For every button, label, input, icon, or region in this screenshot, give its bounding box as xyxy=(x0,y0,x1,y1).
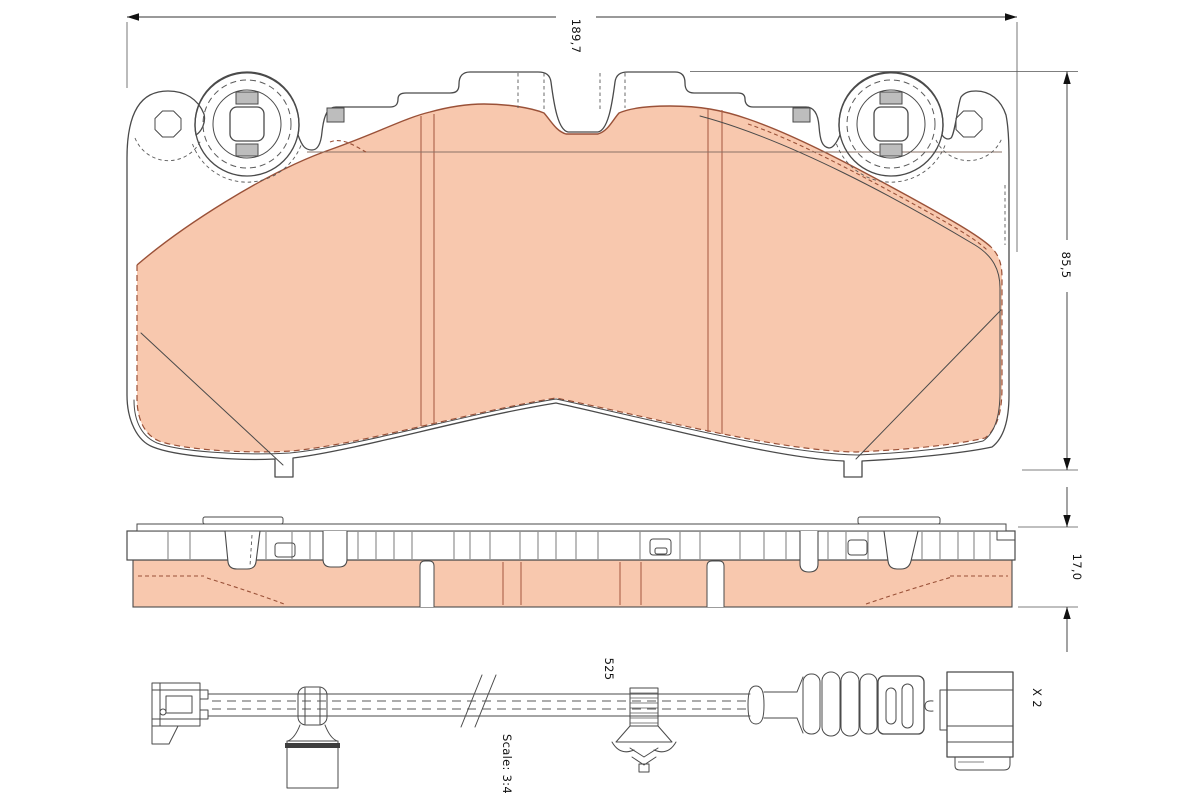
sensor-head-connector xyxy=(152,683,208,744)
sensor-cable xyxy=(208,694,750,716)
arrow-right xyxy=(1005,13,1017,21)
arrow-bottom xyxy=(1063,607,1070,619)
thickness-dimension: 17,0 xyxy=(1018,487,1084,652)
plug-body xyxy=(878,676,933,734)
arrow-top xyxy=(1063,515,1070,527)
drop-tab-trapezoid xyxy=(225,531,260,569)
latch-hook xyxy=(925,701,933,711)
boss-hole xyxy=(230,107,264,141)
backplate-top-rail xyxy=(137,524,1006,531)
spring-seat-bottom xyxy=(880,144,902,156)
wear-sensor-assembly: 525 Scale: 3:4 xyxy=(152,658,1044,794)
cable-ferrule xyxy=(748,686,764,724)
brake-pad-technical-drawing: 189,7 85,5 xyxy=(0,0,1200,800)
thickness-label: 17,0 xyxy=(1070,554,1084,581)
sensor-length-label: 525 xyxy=(602,658,616,681)
raised-tab-left xyxy=(203,517,283,524)
edge-view xyxy=(127,517,1015,607)
left-mounting-boss xyxy=(193,72,302,182)
drawing-canvas: 189,7 85,5 xyxy=(0,0,1200,800)
raised-tab-right xyxy=(858,517,940,524)
friction-band xyxy=(133,560,1012,607)
boss-hole xyxy=(874,107,908,141)
width-label: 189,7 xyxy=(569,19,583,53)
front-view xyxy=(127,72,1009,477)
spring-seat-top xyxy=(880,92,902,104)
arrow-top xyxy=(1063,72,1070,85)
right-ear-hole xyxy=(956,111,982,137)
cable-tube xyxy=(764,677,803,733)
height-label: 85,5 xyxy=(1059,252,1073,279)
left-ear-hole xyxy=(155,111,181,137)
friction-material xyxy=(137,104,1002,452)
spring-seat-bottom xyxy=(236,144,258,156)
drop-tab-round xyxy=(800,531,818,572)
right-ear-hidden-arc xyxy=(936,138,1002,161)
backplate-band xyxy=(127,531,1015,560)
plateau-hidden-edges xyxy=(518,73,625,110)
right-mounting-boss xyxy=(837,72,946,182)
bellows-boot xyxy=(803,672,877,736)
left-abutment-block xyxy=(327,108,344,122)
wear-sensor-body xyxy=(285,687,340,788)
sensor-band xyxy=(285,743,340,748)
scale-label: Scale: 3:4 xyxy=(500,734,514,794)
spring-seat-top xyxy=(236,92,258,104)
right-abutment-block xyxy=(793,108,810,122)
quantity-label: X 2 xyxy=(1030,688,1044,708)
pin-hole xyxy=(160,709,166,715)
arrow-bottom xyxy=(1063,458,1070,470)
left-ear-hidden-arc xyxy=(135,138,201,161)
connector-housing xyxy=(940,672,1013,770)
arrow-left xyxy=(127,13,139,21)
u-clip-slot xyxy=(323,531,347,567)
